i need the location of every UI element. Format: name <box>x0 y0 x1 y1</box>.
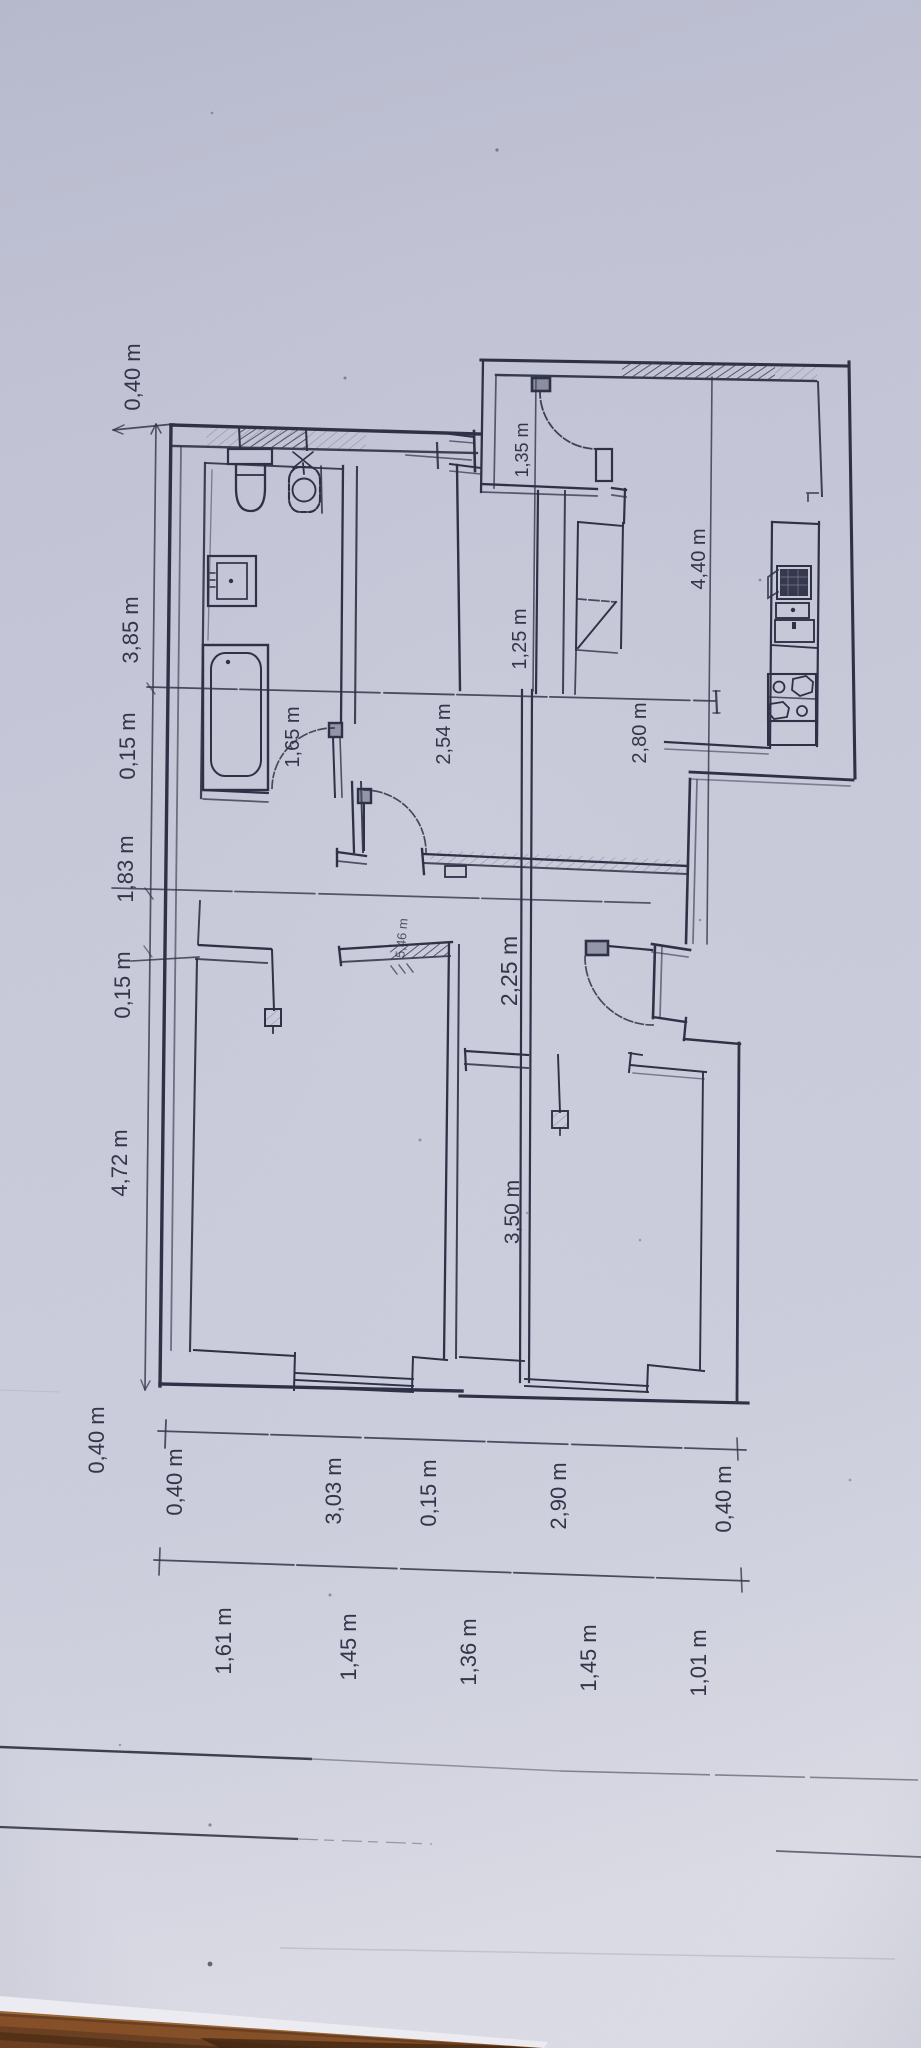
svg-text:1,45 m: 1,45 m <box>336 1613 361 1680</box>
svg-text:2,25 m: 2,25 m <box>496 936 522 1006</box>
svg-text:1,65 m: 1,65 m <box>282 706 304 767</box>
svg-text:0,15 m: 0,15 m <box>115 712 140 779</box>
svg-text:3,85 m: 3,85 m <box>118 596 143 663</box>
svg-text:0,40 m: 0,40 m <box>711 1465 736 1532</box>
svg-text:1,01 m: 1,01 m <box>686 1629 711 1696</box>
svg-text:1,83 m: 1,83 m <box>113 835 138 902</box>
svg-text:1,36 m: 1,36 m <box>456 1618 481 1685</box>
svg-text:2,54 m: 2,54 m <box>433 703 455 764</box>
svg-text:1,35 m: 1,35 m <box>512 422 532 477</box>
svg-text:3,50 m: 3,50 m <box>501 1180 524 1244</box>
svg-text:0,40 m: 0,40 m <box>84 1406 109 1473</box>
svg-text:4,40 m: 4,40 m <box>688 528 710 589</box>
svg-text:1,61 m: 1,61 m <box>211 1607 236 1674</box>
svg-text:0,15 m: 0,15 m <box>416 1459 441 1526</box>
svg-text:0,40 m: 0,40 m <box>162 1448 187 1515</box>
svg-text:1,25 m: 1,25 m <box>509 608 531 669</box>
svg-text:2,90 m: 2,90 m <box>546 1462 571 1529</box>
svg-text:4,72 m: 4,72 m <box>107 1129 132 1196</box>
svg-text:0,40 m: 0,40 m <box>120 343 145 410</box>
svg-text:1,45 m: 1,45 m <box>576 1624 601 1691</box>
svg-text:3,03 m: 3,03 m <box>321 1457 346 1524</box>
svg-text:2,80 m: 2,80 m <box>629 702 651 763</box>
svg-text:0,15 m: 0,15 m <box>110 951 135 1018</box>
